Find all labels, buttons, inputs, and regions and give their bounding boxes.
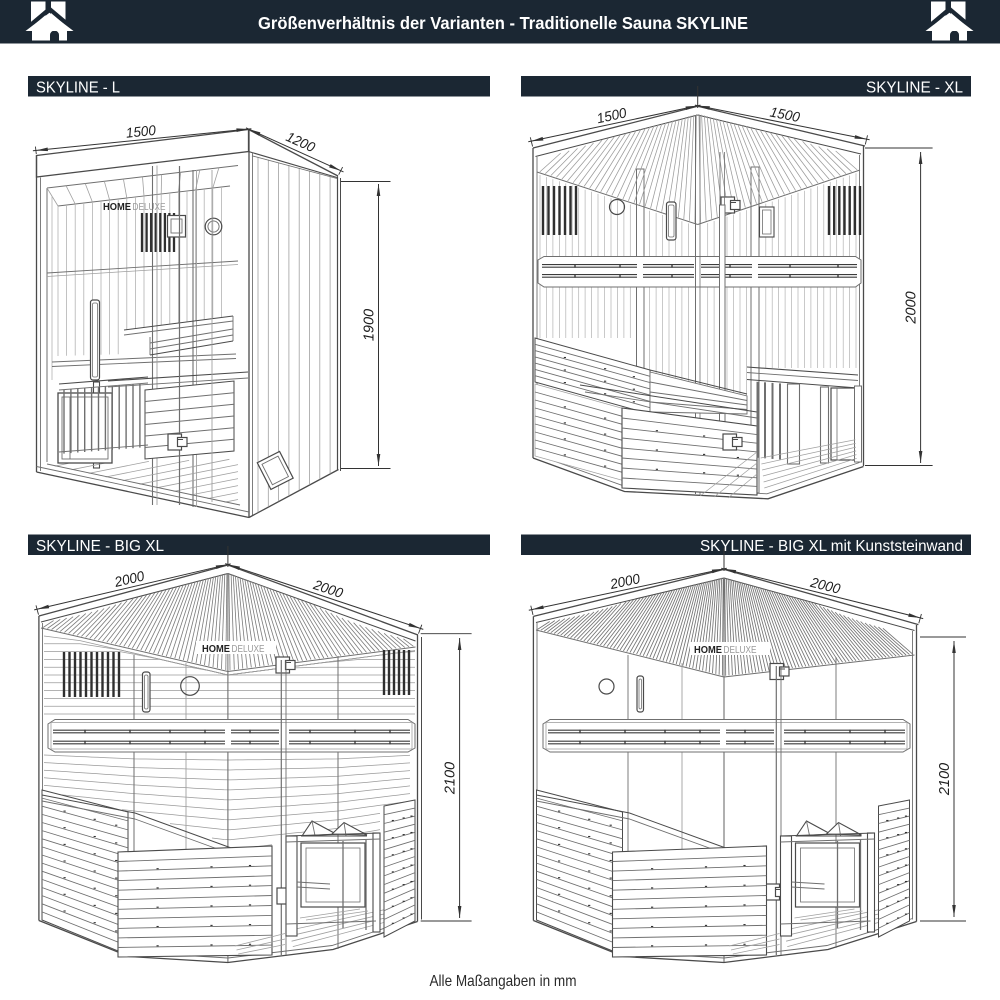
- svg-text:DELUXE: DELUXE: [724, 644, 757, 656]
- svg-text:HOME: HOME: [103, 201, 131, 213]
- svg-text:DELUXE: DELUXE: [133, 201, 166, 213]
- svg-text:SKYLINE - BIG XL mit Kunststei: SKYLINE - BIG XL mit Kunststeinwand: [700, 538, 963, 555]
- svg-text:2000: 2000: [112, 567, 146, 590]
- svg-text:2100: 2100: [937, 763, 953, 796]
- svg-text:Größenverhältnis der Varianten: Größenverhältnis der Varianten - Traditi…: [258, 13, 748, 33]
- svg-text:1200: 1200: [284, 128, 318, 155]
- svg-text:DELUXE: DELUXE: [232, 643, 265, 655]
- svg-text:SKYLINE - XL: SKYLINE - XL: [866, 80, 963, 97]
- svg-text:2000: 2000: [608, 570, 642, 592]
- svg-text:HOME: HOME: [694, 644, 722, 656]
- svg-text:1500: 1500: [125, 122, 157, 141]
- svg-text:2000: 2000: [904, 291, 920, 324]
- svg-text:2100: 2100: [443, 762, 459, 795]
- svg-text:SKYLINE - L: SKYLINE - L: [36, 80, 120, 97]
- svg-text:1900: 1900: [362, 309, 378, 341]
- svg-text:2000: 2000: [808, 574, 842, 597]
- svg-text:HOME: HOME: [202, 643, 230, 655]
- svg-text:1500: 1500: [769, 104, 802, 126]
- svg-text:SKYLINE - BIG XL: SKYLINE - BIG XL: [36, 538, 164, 555]
- svg-text:Alle Maßangaben in mm: Alle Maßangaben in mm: [430, 973, 577, 990]
- svg-text:1500: 1500: [595, 104, 628, 126]
